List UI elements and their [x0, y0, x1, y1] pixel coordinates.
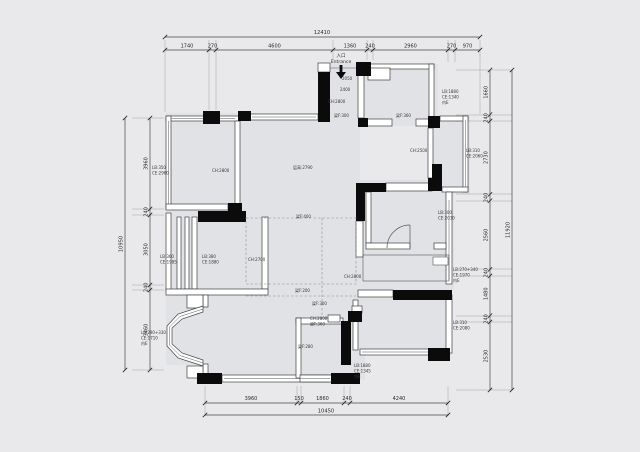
- beam-label: 梁F:360: [310, 321, 325, 327]
- dim-label: 2730: [484, 151, 490, 164]
- dim-label: 1480: [484, 287, 490, 300]
- annotation-label: CE:2060: [466, 154, 483, 159]
- dim-label: 240: [484, 193, 490, 203]
- dim-label: 12410: [314, 30, 331, 36]
- dim-label: 240: [365, 44, 375, 50]
- room-label: CH:2500: [410, 148, 428, 153]
- beam-label: 梁F:300: [312, 300, 327, 306]
- annotation-label: CE:1340: [442, 95, 459, 100]
- dim-label: 970: [463, 44, 473, 50]
- annotation-label: CE:1880: [202, 260, 219, 265]
- dim-label: 240: [342, 396, 352, 402]
- dim-label: 3960: [144, 157, 150, 170]
- dim-label: 240: [484, 113, 490, 123]
- room-label: 层高:2790: [293, 164, 313, 170]
- dim-label: 240: [484, 268, 490, 278]
- annotation-label: LB:360: [160, 254, 174, 259]
- annotation-label: CE:2080: [453, 326, 470, 331]
- dim-label: 1360: [344, 44, 357, 50]
- annotation-label: 内E: [141, 340, 148, 346]
- dim-label: 1660: [484, 86, 490, 99]
- dim-label: 270: [447, 44, 457, 50]
- dim-label: 2960: [404, 44, 417, 50]
- annotation-label: LB:1880: [354, 363, 371, 368]
- dim-label: 10950: [119, 236, 125, 253]
- annotation-label: CE:1345: [354, 369, 371, 374]
- annotation-label: CH:2800: [310, 316, 328, 321]
- annotation-label: 2400: [340, 87, 351, 92]
- dim-label: 11920: [506, 222, 512, 239]
- annotation-label: LB:290+330: [141, 330, 166, 335]
- dim-label: 3960: [245, 396, 258, 402]
- annotation-label: 内E: [453, 277, 460, 283]
- dim-label: 1860: [316, 396, 329, 402]
- annotation-label: LB:300: [438, 210, 452, 215]
- dim-label: 4600: [268, 44, 281, 50]
- annotation-label: LB:380: [202, 254, 216, 259]
- dim-label: 150: [294, 396, 304, 402]
- annotation-label: CE:2030: [438, 216, 455, 221]
- annotation-label: 内E: [442, 99, 449, 105]
- entrance-label-en: Entrance: [331, 59, 352, 65]
- beam-label: 梁F:400: [296, 213, 311, 219]
- annotation-label: LB:1880: [442, 89, 459, 94]
- dim-label: 240: [144, 207, 150, 217]
- beam-label: 梁F:200: [295, 287, 310, 293]
- annotation-label: LB:310: [453, 320, 467, 325]
- annotation-label: CE:1970: [453, 273, 470, 278]
- annotation-label: LB:350: [152, 165, 166, 170]
- entrance-label-zh: 入口: [336, 53, 346, 59]
- dim-label: 1740: [181, 44, 194, 50]
- dim-label: 2530: [484, 350, 490, 363]
- dim-label: 270: [208, 44, 218, 50]
- beam-label: 梁F:360: [396, 112, 411, 118]
- room-label: CH:2700: [248, 257, 266, 262]
- dim-label: 240: [484, 314, 490, 324]
- annotation-label: CE:1985: [160, 260, 177, 265]
- dim-label: 10450: [318, 409, 335, 415]
- annotation-label: CE:1710: [141, 336, 158, 341]
- annotation-label: CH:2800: [328, 99, 346, 104]
- annotation-label: 2050: [342, 76, 353, 81]
- dim-label: 240: [144, 283, 150, 293]
- beam-label: 梁F:280: [298, 343, 313, 349]
- dim-label: 3050: [144, 243, 150, 256]
- beam-label: 梁F:300: [334, 112, 349, 118]
- room-label: CH:2800: [344, 274, 362, 279]
- annotation-label: LB:310: [466, 148, 480, 153]
- dim-label: 2560: [484, 229, 490, 242]
- annotation-label: 内E: [354, 373, 361, 379]
- floor-plan-canvas: 12410 1740 270 4600 1360 240 2960 270 97…: [0, 0, 640, 452]
- annotation-label: LB:270+340: [453, 267, 478, 272]
- annotation-label: CH:2800: [212, 168, 230, 173]
- annotation-label: CE:2960: [152, 171, 169, 176]
- dim-label: 4240: [393, 396, 406, 402]
